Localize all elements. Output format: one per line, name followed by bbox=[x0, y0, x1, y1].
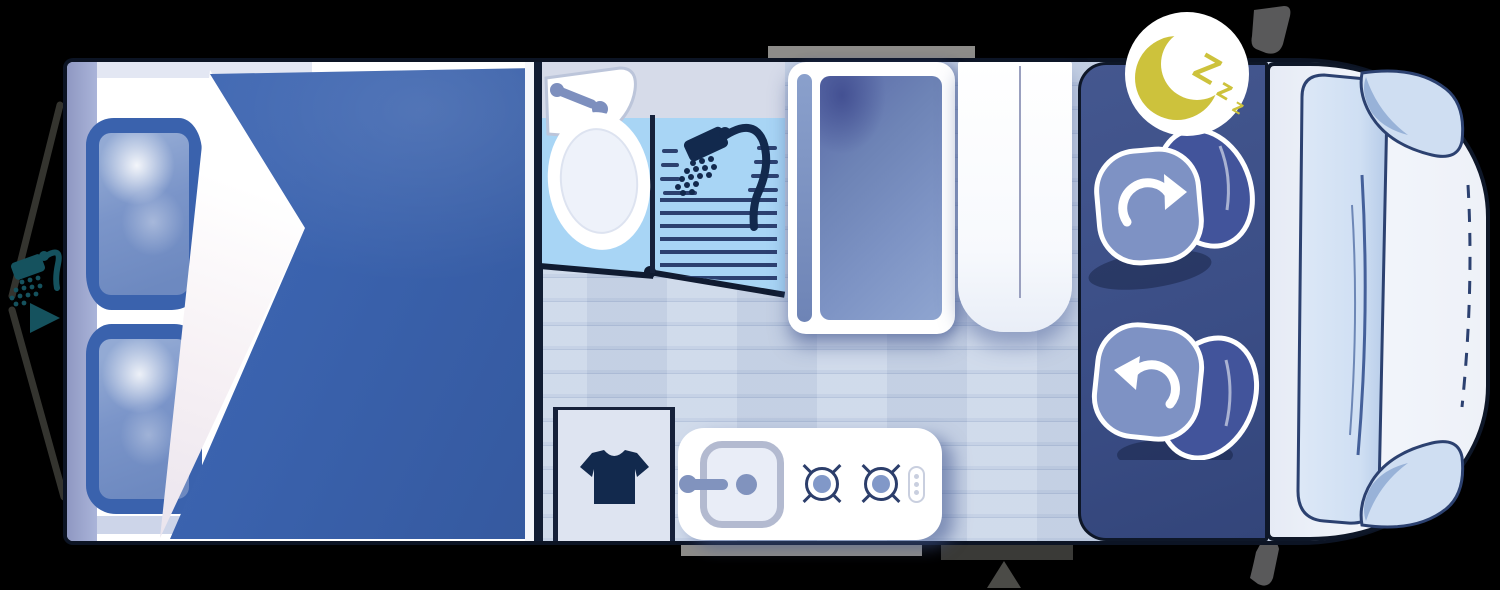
hood-dashed-line bbox=[1462, 185, 1470, 407]
up-triangle-icon bbox=[987, 561, 1021, 588]
burner-center bbox=[813, 475, 831, 493]
seat-cushion bbox=[1093, 146, 1204, 266]
control-dot bbox=[914, 474, 919, 479]
faucet-bar bbox=[688, 479, 728, 490]
rear-door-line bbox=[12, 310, 64, 497]
burner-center bbox=[872, 475, 890, 493]
wardrobe-unit bbox=[788, 62, 955, 334]
faucet-knob bbox=[736, 474, 757, 495]
outdoor-shower-icon bbox=[10, 251, 59, 306]
control-dot bbox=[914, 490, 919, 495]
control-dot bbox=[914, 482, 919, 487]
cabinet bbox=[958, 62, 1072, 332]
pillow bbox=[86, 118, 202, 310]
campervan-floorplan: Z z z bbox=[0, 0, 1500, 590]
shower-head-icon bbox=[665, 105, 785, 255]
wardrobe-handle bbox=[797, 74, 812, 322]
wardrobe-door bbox=[820, 76, 942, 320]
hob-control-panel bbox=[908, 466, 925, 503]
burner-icon bbox=[805, 467, 839, 501]
right-triangle-icon bbox=[30, 303, 60, 333]
tshirt-icon bbox=[580, 450, 650, 508]
pillow-inner bbox=[99, 133, 189, 295]
windshield bbox=[1298, 75, 1387, 523]
seat-cushion bbox=[1090, 321, 1205, 443]
cabinet-door-line bbox=[1019, 66, 1021, 298]
kitchen-counter bbox=[678, 428, 942, 540]
swivel-seats bbox=[1080, 110, 1270, 460]
night-mode-badge: Z z z bbox=[1117, 2, 1267, 150]
bed-edge bbox=[525, 62, 534, 541]
burner-icon bbox=[864, 467, 898, 501]
cab-windows bbox=[1266, 55, 1500, 555]
toilet-bowl bbox=[555, 124, 644, 238]
entry-step-dark bbox=[941, 543, 1073, 560]
